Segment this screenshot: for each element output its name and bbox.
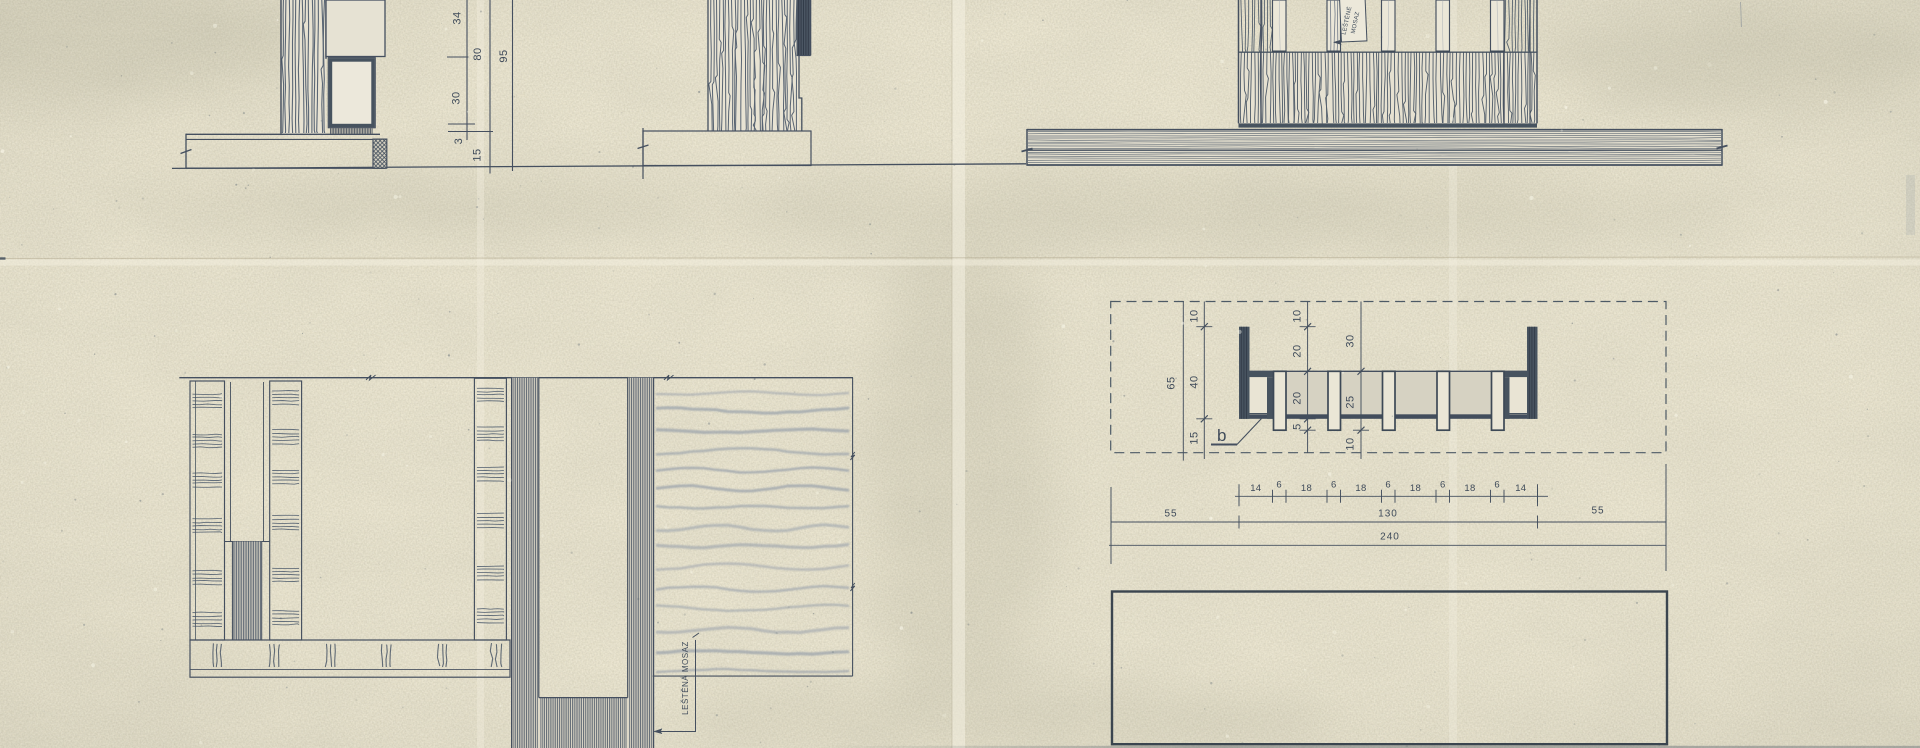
svg-text:30: 30 — [1345, 334, 1357, 347]
svg-text:240: 240 — [1380, 531, 1400, 542]
svg-text:18: 18 — [1464, 483, 1475, 494]
svg-text:10: 10 — [1292, 309, 1304, 322]
svg-text:14: 14 — [1250, 483, 1261, 494]
svg-text:18: 18 — [1355, 483, 1366, 494]
svg-text:14: 14 — [1515, 483, 1526, 494]
svg-text:6: 6 — [1494, 479, 1500, 490]
svg-text:40: 40 — [1189, 375, 1201, 388]
svg-text:5: 5 — [1292, 423, 1304, 430]
svg-text:55: 55 — [1164, 509, 1177, 520]
svg-text:b: b — [1217, 426, 1227, 445]
svg-text:3: 3 — [453, 138, 465, 145]
svg-text:34: 34 — [452, 11, 464, 24]
svg-text:20: 20 — [1292, 344, 1304, 357]
svg-text:6: 6 — [1440, 479, 1446, 490]
svg-text:10: 10 — [1345, 437, 1357, 450]
svg-text:LEŠTĚNÁ MOSAZ: LEŠTĚNÁ MOSAZ — [681, 641, 690, 715]
svg-text:18: 18 — [1410, 483, 1421, 494]
svg-text:80: 80 — [472, 47, 484, 60]
svg-text:18: 18 — [1301, 483, 1312, 494]
svg-text:15: 15 — [1189, 431, 1201, 444]
svg-text:6: 6 — [1276, 479, 1282, 490]
svg-text:20: 20 — [1292, 391, 1304, 404]
svg-text:6: 6 — [1385, 479, 1391, 490]
svg-text:95: 95 — [498, 49, 510, 62]
svg-text:25: 25 — [1345, 395, 1357, 408]
svg-text:30: 30 — [451, 91, 463, 104]
svg-text:10: 10 — [1189, 309, 1201, 322]
svg-text:55: 55 — [1591, 506, 1604, 517]
svg-text:6: 6 — [1331, 479, 1337, 490]
svg-text:130: 130 — [1378, 509, 1398, 520]
svg-text:15: 15 — [472, 148, 484, 161]
